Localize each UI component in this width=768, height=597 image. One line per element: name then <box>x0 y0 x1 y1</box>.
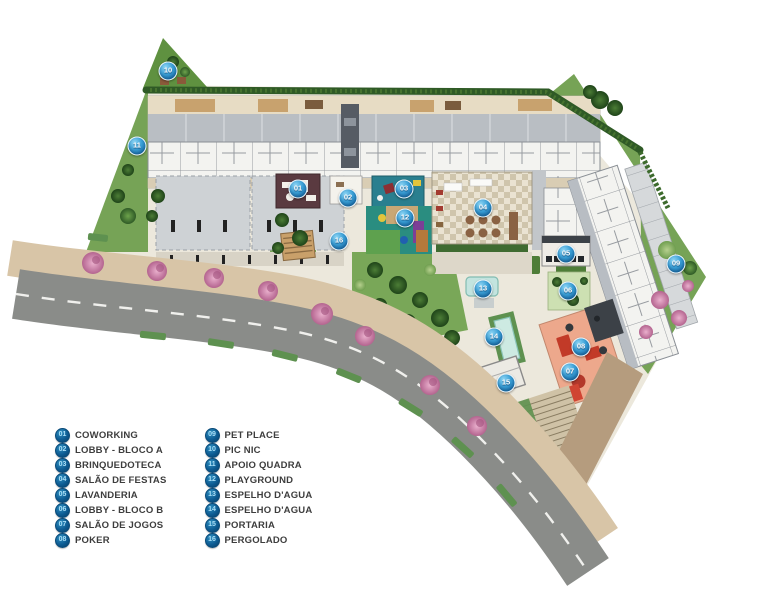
legend-label-15: PORTARIA <box>225 520 276 531</box>
legend-item-13: 13ESPELHO D'AGUA <box>205 488 313 503</box>
legend-badge-06: 06 <box>55 503 70 518</box>
legend-label-11: APOIO QUADRA <box>225 460 302 471</box>
legend-badge-07: 07 <box>55 518 70 533</box>
legend-badge-09: 09 <box>205 428 220 443</box>
legend-label-10: PIC NIC <box>225 445 261 456</box>
legend-badge-11: 11 <box>205 458 220 473</box>
site-plan-image: 01020304050607080910111213141516 01COWOR… <box>0 0 768 597</box>
salao-de-festas-room <box>432 172 532 274</box>
legend-label-02: LOBBY - BLOCO A <box>75 445 163 456</box>
lobby-a-room <box>330 176 362 204</box>
legend-badge-04: 04 <box>55 473 70 488</box>
legend-item-11: 11APOIO QUADRA <box>205 458 313 473</box>
legend-item-06: 06LOBBY - BLOCO B <box>55 503 167 518</box>
legend-item-03: 03BRINQUEDOTECA <box>55 458 167 473</box>
legend-item-09: 09PET PLACE <box>205 428 313 443</box>
legend-badge-10: 10 <box>205 443 220 458</box>
legend-label-08: POKER <box>75 535 110 546</box>
legend-item-16: 16PERGOLADO <box>205 533 313 548</box>
legend-badge-02: 02 <box>55 443 70 458</box>
legend-item-04: 04SALÃO DE FESTAS <box>55 473 167 488</box>
legend-label-05: LAVANDERIA <box>75 490 138 501</box>
legend-item-15: 15PORTARIA <box>205 518 313 533</box>
legend-item-14: 14ESPELHO D'AGUA <box>205 503 313 518</box>
legend-badge-01: 01 <box>55 428 70 443</box>
legend-item-05: 05LAVANDERIA <box>55 488 167 503</box>
legend-item-08: 08POKER <box>55 533 167 548</box>
legend-label-01: COWORKING <box>75 430 138 441</box>
legend-label-04: SALÃO DE FESTAS <box>75 475 167 486</box>
legend-badge-14: 14 <box>205 503 220 518</box>
brinquedoteca-room <box>372 176 424 208</box>
playground-area <box>366 206 432 254</box>
legend-badge-13: 13 <box>205 488 220 503</box>
legend-label-14: ESPELHO D'AGUA <box>225 505 313 516</box>
legend-badge-15: 15 <box>205 518 220 533</box>
legend-item-01: 01COWORKING <box>55 428 167 443</box>
legend-label-03: BRINQUEDOTECA <box>75 460 162 471</box>
legend-label-16: PERGOLADO <box>225 535 288 546</box>
legend-column-2: 09PET PLACE10PIC NIC11APOIO QUADRA12PLAY… <box>205 428 313 548</box>
lobby-b-area <box>548 272 590 310</box>
legend-badge-16: 16 <box>205 533 220 548</box>
legend-badge-03: 03 <box>55 458 70 473</box>
legend-badge-05: 05 <box>55 488 70 503</box>
legend-label-12: PLAYGROUND <box>225 475 294 486</box>
legend-badge-12: 12 <box>205 473 220 488</box>
legend-label-09: PET PLACE <box>225 430 280 441</box>
coworking-room <box>276 174 320 208</box>
legend-label-13: ESPELHO D'AGUA <box>225 490 313 501</box>
legend-item-07: 07SALÃO DE JOGOS <box>55 518 167 533</box>
lavanderia-room <box>542 236 590 266</box>
legend-item-12: 12PLAYGROUND <box>205 473 313 488</box>
legend-column-1: 01COWORKING02LOBBY - BLOCO A03BRINQUEDOT… <box>55 428 167 548</box>
legend-badge-08: 08 <box>55 533 70 548</box>
legend: 01COWORKING02LOBBY - BLOCO A03BRINQUEDOT… <box>55 428 312 548</box>
legend-label-06: LOBBY - BLOCO B <box>75 505 163 516</box>
legend-item-02: 02LOBBY - BLOCO A <box>55 443 167 458</box>
legend-label-07: SALÃO DE JOGOS <box>75 520 163 531</box>
legend-item-10: 10PIC NIC <box>205 443 313 458</box>
